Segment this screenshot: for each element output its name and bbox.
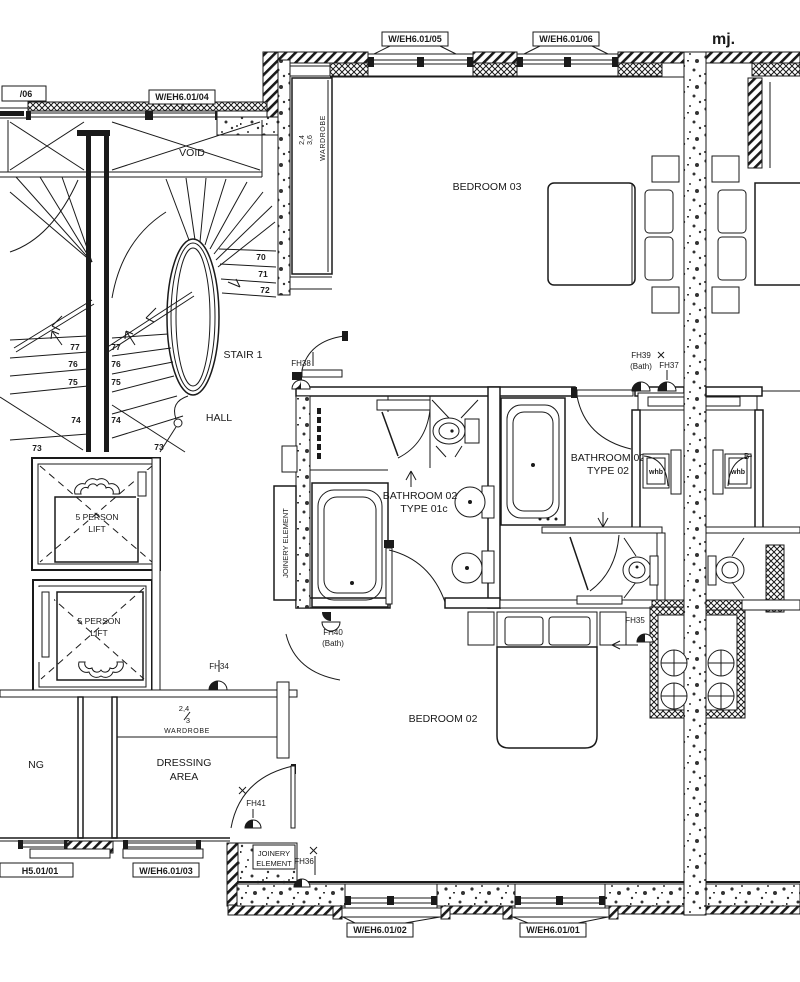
tread-m76: 76: [111, 359, 121, 369]
whb-left: whb: [643, 450, 681, 494]
bedroom02: BEDROOM 02: [409, 612, 626, 748]
dressing-dim-den: 3: [186, 716, 190, 725]
wardrobe-bedroom03-label: WARDROBE: [320, 115, 327, 161]
tread-m75: 75: [111, 377, 121, 387]
joinery-element-vertical: JOINERY ELEMENT: [274, 446, 297, 600]
bed-bedroom03: [548, 156, 679, 313]
fh38-label: FH38: [291, 359, 311, 368]
whb-left-label: whb: [648, 469, 663, 476]
joinery-box-label1: JOINERY: [258, 849, 290, 858]
bathroom02-label2: TYPE 02: [587, 465, 629, 477]
lift-shafts: 5 PERSON LIFT 5 PERSON LIFT: [32, 458, 160, 693]
tag-w05: W/EH6.01/05: [388, 34, 442, 44]
fh35-label: FH35: [625, 616, 645, 625]
void-label: VOID: [179, 147, 205, 159]
stair-label: STAIR 1: [224, 349, 263, 361]
wardrobe-bedroom03: WARDROBE 2,4 3,6: [290, 78, 332, 289]
bathroom02-label1: BATHROOM 02: [571, 452, 646, 464]
lift2-counterweight: [79, 662, 124, 677]
party-wall: [684, 52, 706, 915]
window-w06: [517, 46, 618, 76]
tread-m73: 73: [154, 442, 164, 452]
tread-m77: 77: [111, 342, 121, 352]
window-w01: [507, 884, 613, 917]
fh40-sub-label: (Bath): [322, 639, 344, 648]
tag-w03: W/EH6.01/03: [139, 866, 193, 876]
lift2-label2: LIFT: [90, 628, 107, 638]
dressing-label1: DRESSING: [157, 757, 212, 769]
lift2-label: 5 PERSON: [78, 616, 121, 626]
bathroom01c-label2: TYPE 01c: [400, 503, 447, 515]
tread-m74: 74: [111, 415, 121, 425]
hall-entrance-door: [292, 331, 348, 380]
door-01c-bedroom02: [384, 540, 445, 604]
tread-l76: 76: [68, 359, 78, 369]
b-partial-label: B: [744, 452, 749, 461]
fh39-sub-label: (Bath): [630, 362, 652, 371]
floor-plan-page: VOID: [0, 0, 800, 982]
fh36-label: FH36: [294, 857, 314, 866]
hall-label: HALL: [206, 412, 232, 424]
dressing-area: WARDROBE 2,4 3 DRESSING AREA NG: [0, 682, 297, 838]
stair-oval-void: [167, 239, 219, 395]
bathtub-01c: [312, 483, 388, 607]
bed-bedroom02: [468, 612, 626, 748]
tag-w06: W/EH6.01/06: [539, 34, 593, 44]
window-w05: [368, 46, 473, 76]
tag-w04: W/EH6.01/04: [155, 92, 209, 102]
bedroom03: BEDROOM 03 WARDROBE 2,4 3,6: [290, 78, 679, 313]
bedroom03-label: BEDROOM 03: [453, 181, 522, 193]
tread-70: 70: [256, 252, 266, 262]
tag-w02: W/EH6.01/02: [353, 925, 407, 935]
wardrobe-dim-b: 3,6: [307, 135, 314, 145]
shower-door-01c: [377, 400, 430, 458]
whb-right-label: whb: [730, 469, 745, 476]
dressing-label2: AREA: [170, 771, 199, 783]
shower-02: [570, 535, 622, 604]
fh39-label: FH39: [631, 351, 651, 360]
top-exterior-wall: [268, 46, 800, 77]
bathtub-02: [501, 398, 565, 525]
door-02: [571, 387, 633, 449]
wardrobe-dressing-label: WARDROBE: [164, 728, 210, 735]
tread-l73: 73: [32, 443, 42, 453]
arrow-down-02: [598, 512, 608, 527]
dressing-door: [231, 764, 296, 828]
tread-l74: 74: [71, 415, 81, 425]
wc-right-unit: [708, 538, 744, 598]
lift1-label: 5 PERSON: [76, 512, 119, 522]
wardrobe-dim-a: 2,4: [299, 135, 306, 145]
bathroom01c-label1: BATHROOM 02: [383, 490, 458, 502]
window-w02: [337, 884, 445, 917]
tag-w06-cut: /06: [20, 89, 33, 99]
dressing-dim-num: 2,4: [179, 704, 189, 713]
mj-annotation: mj.: [712, 31, 735, 48]
joinery-box-label2: ELEMENT: [256, 859, 292, 868]
wc-02: [623, 538, 658, 598]
stair-1: 70 71 72 77 76 75 74 73 77 76 75 74 73 S…: [0, 130, 276, 453]
tread-72: 72: [260, 285, 270, 295]
joinery-vertical-label: JOINERY ELEMENT: [281, 508, 290, 578]
bathroom-01c: BATHROOM 02 TYPE 01c: [310, 396, 494, 607]
fh41-label: FH41: [246, 799, 266, 808]
bedroom03-west-wall: [278, 60, 290, 295]
tread-l75: 75: [68, 377, 78, 387]
stair-right-flight: [106, 178, 276, 452]
stair-left-flight: [0, 177, 94, 450]
fh37-label: FH37: [659, 361, 679, 370]
adjacent-unit: [706, 78, 800, 612]
tag-w01: W/EH6.01/01: [526, 925, 580, 935]
arrow-up-01c: [406, 471, 416, 487]
floor-plan-canvas: VOID: [0, 0, 800, 982]
bedroom02-label: BEDROOM 02: [409, 713, 478, 725]
tag-w01-cut: H5.01/01: [22, 866, 59, 876]
tread-71: 71: [258, 269, 268, 279]
lift1-label2: LIFT: [88, 524, 105, 534]
ng-partial-label: NG: [28, 759, 44, 771]
lift1-counterweight: [75, 479, 120, 494]
wc-01c: [430, 396, 479, 468]
tread-l77: 77: [70, 342, 80, 352]
bottom-left-wall: [0, 838, 230, 858]
